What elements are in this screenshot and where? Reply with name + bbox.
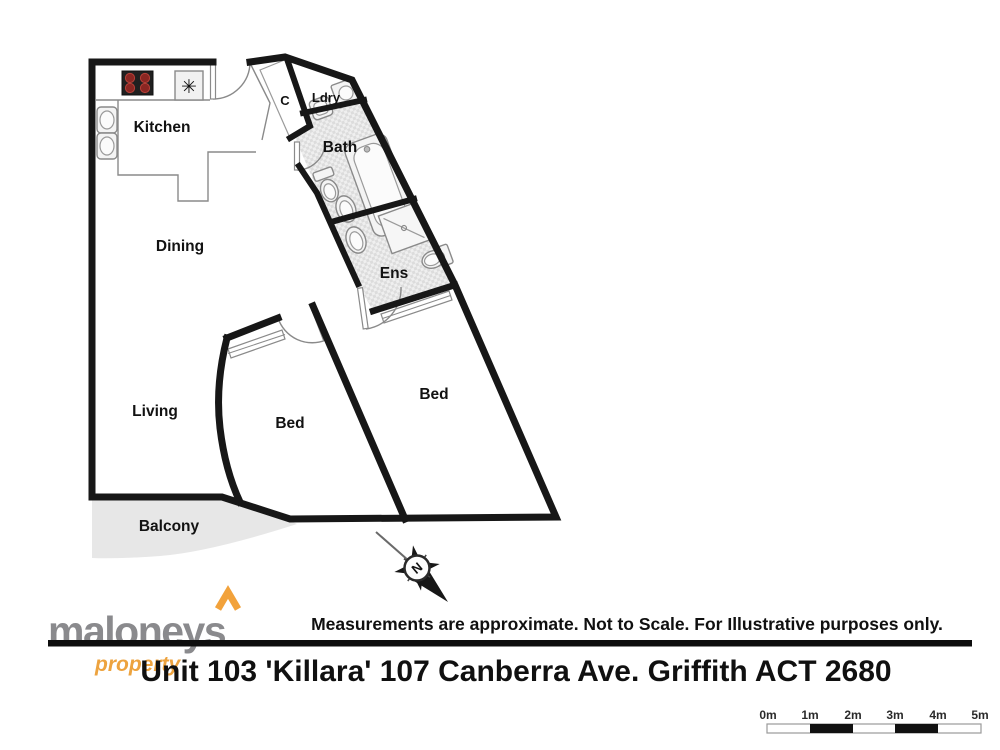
room-label-bed1: Bed: [275, 415, 304, 432]
room-label-bath: Bath: [323, 139, 357, 156]
footer-divider-line: [48, 640, 972, 647]
room-label-bed2: Bed: [419, 386, 448, 403]
footer: maloneys property Measurements are appro…: [48, 592, 972, 688]
room-label-laundry: Ldry: [312, 90, 341, 105]
room-label-kitchen: Kitchen: [134, 119, 191, 136]
freezer-symbol: ✳: [181, 77, 197, 98]
logo-caret-icon: [218, 592, 238, 609]
compass-icon: N: [376, 532, 448, 602]
room-label-balcony: Balcony: [139, 518, 200, 535]
scale-bar: 0m 1m 2m 3m 4m 5m: [759, 708, 988, 733]
scale-label-0m: 0m: [759, 708, 776, 722]
freezer-icon: ✳: [175, 71, 203, 100]
room-label-dining: Dining: [156, 238, 204, 255]
address-title: Unit 103 'Killara' 107 Canberra Ave. Gri…: [140, 655, 891, 688]
room-label-ens: Ens: [380, 265, 408, 282]
scale-label-3m: 3m: [886, 708, 903, 722]
floor-plan-page: ✳: [0, 0, 1000, 750]
kitchen-sink-icon: [97, 107, 117, 159]
stove-icon: [122, 71, 153, 95]
scale-label-2m: 2m: [844, 708, 861, 722]
room-label-living: Living: [132, 403, 178, 420]
floor-plan-svg: ✳: [0, 0, 1000, 750]
room-label-closet: C: [280, 93, 290, 108]
disclaimer-text: Measurements are approximate. Not to Sca…: [311, 614, 943, 634]
scale-label-1m: 1m: [801, 708, 818, 722]
scale-label-4m: 4m: [929, 708, 946, 722]
scale-label-5m: 5m: [971, 708, 988, 722]
logo-maloneys: maloneys: [48, 608, 226, 654]
